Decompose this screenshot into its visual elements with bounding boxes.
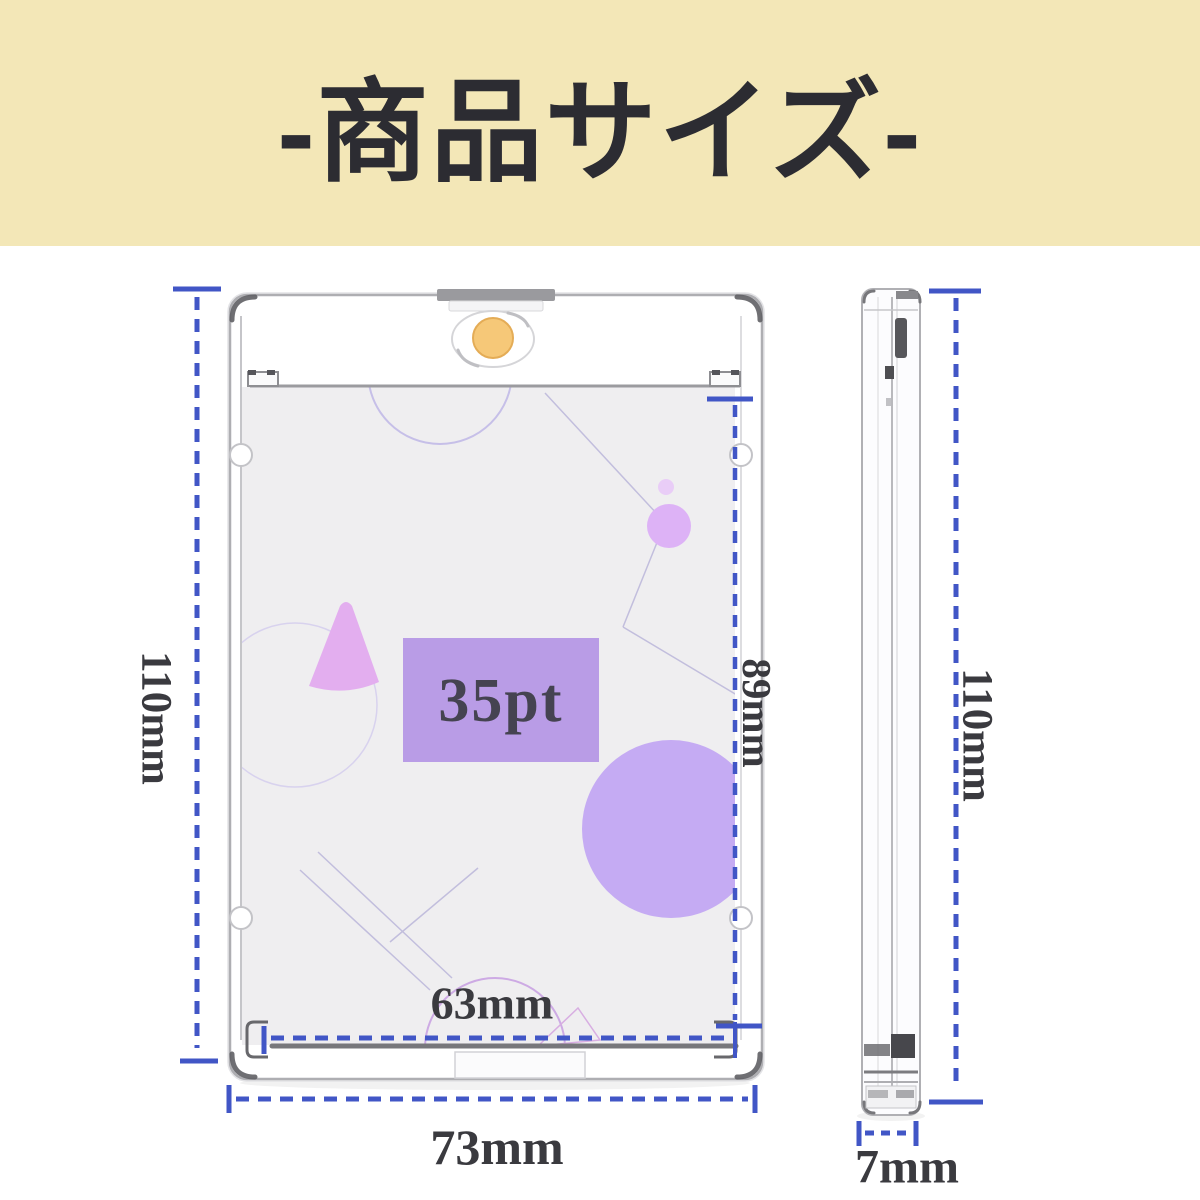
- outer-width-label: 73mm: [430, 1119, 563, 1175]
- inner-width-label: 63mm: [431, 978, 554, 1029]
- size-diagram: 35pt: [0, 0, 1200, 1200]
- bottom-tab: [455, 1052, 585, 1078]
- product-size-image: -商品サイズ-: [0, 0, 1200, 1200]
- side-view: [857, 289, 925, 1121]
- deco-tiny-circle: [658, 479, 674, 495]
- pt-rating-label: 35pt: [438, 667, 563, 735]
- inner-height-label: 89mm: [734, 658, 780, 767]
- deco-small-circle: [647, 504, 691, 548]
- top-tab: [437, 289, 555, 301]
- side-height-label: 110mm: [954, 668, 1001, 802]
- thickness-label: 7mm: [855, 1141, 959, 1194]
- front-height-label: 110mm: [133, 651, 180, 785]
- side-bottom-clasp: [864, 1034, 918, 1108]
- top-tab-inner: [449, 301, 543, 311]
